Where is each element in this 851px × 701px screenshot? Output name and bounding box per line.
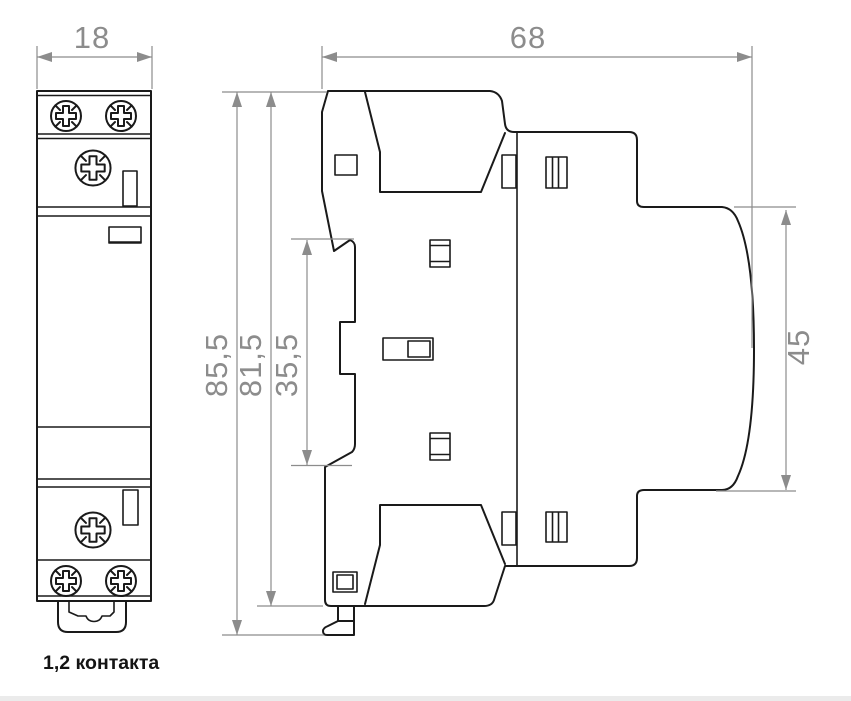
screw-icon: [75, 150, 110, 185]
back-terminal-top: [502, 155, 567, 188]
arrow-right-icon: [137, 52, 152, 62]
arrow-down-icon: [302, 450, 312, 465]
screw-icon: [51, 101, 81, 131]
dimension-label-height-back: 45: [781, 329, 816, 365]
indicator-window: [109, 227, 141, 243]
dimension-label-height-body: 81,5: [233, 333, 268, 397]
screw-icon: [106, 566, 136, 596]
screw-icon: [106, 101, 136, 131]
arrow-left-icon: [322, 52, 337, 62]
screw-icon: [51, 566, 81, 596]
flange-square-top: [335, 155, 357, 175]
side-view: [322, 91, 754, 635]
din-clip: [58, 602, 126, 632]
front-view: [37, 91, 151, 632]
dimension-front-width: 18: [37, 20, 152, 89]
side-mounting-foot: [323, 606, 354, 635]
dimension-label-side-width: 68: [510, 20, 546, 55]
side-mid-details: [383, 240, 450, 460]
contactor-dimension-drawing: 18 68 85,5 81,5 35,5 45 1,2 контакта: [0, 0, 851, 701]
side-outer-profile: [322, 91, 754, 606]
side-top-cover-edges: [365, 92, 505, 192]
arrow-right-icon: [737, 52, 752, 62]
flange-square-bottom-inner: [337, 575, 353, 589]
arrow-up-icon: [302, 240, 312, 255]
arrow-up-icon: [266, 92, 276, 107]
arrow-left-icon: [37, 52, 52, 62]
dimension-label-front-width: 18: [74, 20, 110, 55]
front-slot-lower: [123, 490, 138, 525]
dimension-label-height-mid: 35,5: [269, 333, 304, 397]
contacts-caption: 1,2 контакта: [43, 652, 159, 674]
dimension-side-width: 68: [322, 20, 752, 348]
drawing-canvas: 18 68 85,5 81,5 35,5 45 1,2 контакта: [0, 0, 851, 701]
front-slot-upper: [123, 171, 137, 206]
arrow-up-icon: [232, 92, 242, 107]
arrow-down-icon: [266, 591, 276, 606]
side-bottom-cover-edges: [365, 505, 505, 604]
dimension-label-height-total: 85,5: [199, 333, 234, 397]
back-terminal-bottom: [502, 512, 567, 545]
arrow-down-icon: [781, 475, 791, 490]
arrow-up-icon: [781, 210, 791, 225]
arrow-down-icon: [232, 620, 242, 635]
footer-strip: [0, 696, 851, 701]
screw-icon: [75, 512, 110, 547]
dimension-height-mid: 35,5: [269, 239, 354, 466]
dimension-height-back: 45: [716, 207, 816, 491]
